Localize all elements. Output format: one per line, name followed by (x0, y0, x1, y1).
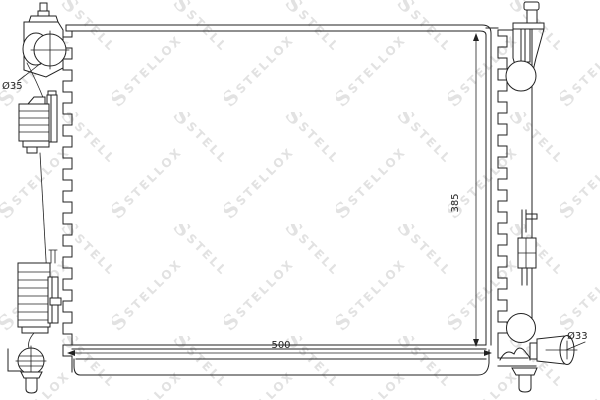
inlet-neck-tip (40, 3, 47, 11)
bracket-plate-cap (48, 91, 56, 95)
bracket-tab (50, 298, 61, 305)
outlet-drain-foot (512, 368, 537, 375)
bracket-flange (23, 141, 49, 147)
core-height-label: 385 (450, 193, 461, 212)
core-width-label: 500 (271, 340, 290, 351)
bracket-ribbed-block (18, 263, 50, 327)
inlet-diameter-label: Ø35 (2, 80, 23, 92)
radiator-technical-drawing: SSTELLOX SSTELLOX 385 500 (0, 0, 600, 400)
filler-boss-circle (506, 61, 536, 91)
bracket-ribbed-block (19, 104, 49, 141)
inlet-flange (29, 16, 58, 22)
inlet-neck (38, 11, 49, 16)
outlet-diameter-label: Ø33 (567, 330, 588, 342)
watermark-layer (0, 0, 600, 400)
filler-neck (527, 10, 537, 23)
outlet-boss-circle (507, 314, 536, 343)
filler-flange (513, 23, 544, 29)
outlet-collar (530, 343, 537, 359)
drain-pin (26, 378, 37, 393)
outlet-drain-pin (519, 375, 531, 392)
bracket-foot (27, 147, 37, 153)
drain-foot (21, 372, 42, 378)
filler-cap (524, 2, 539, 10)
bracket-flange (22, 327, 48, 333)
